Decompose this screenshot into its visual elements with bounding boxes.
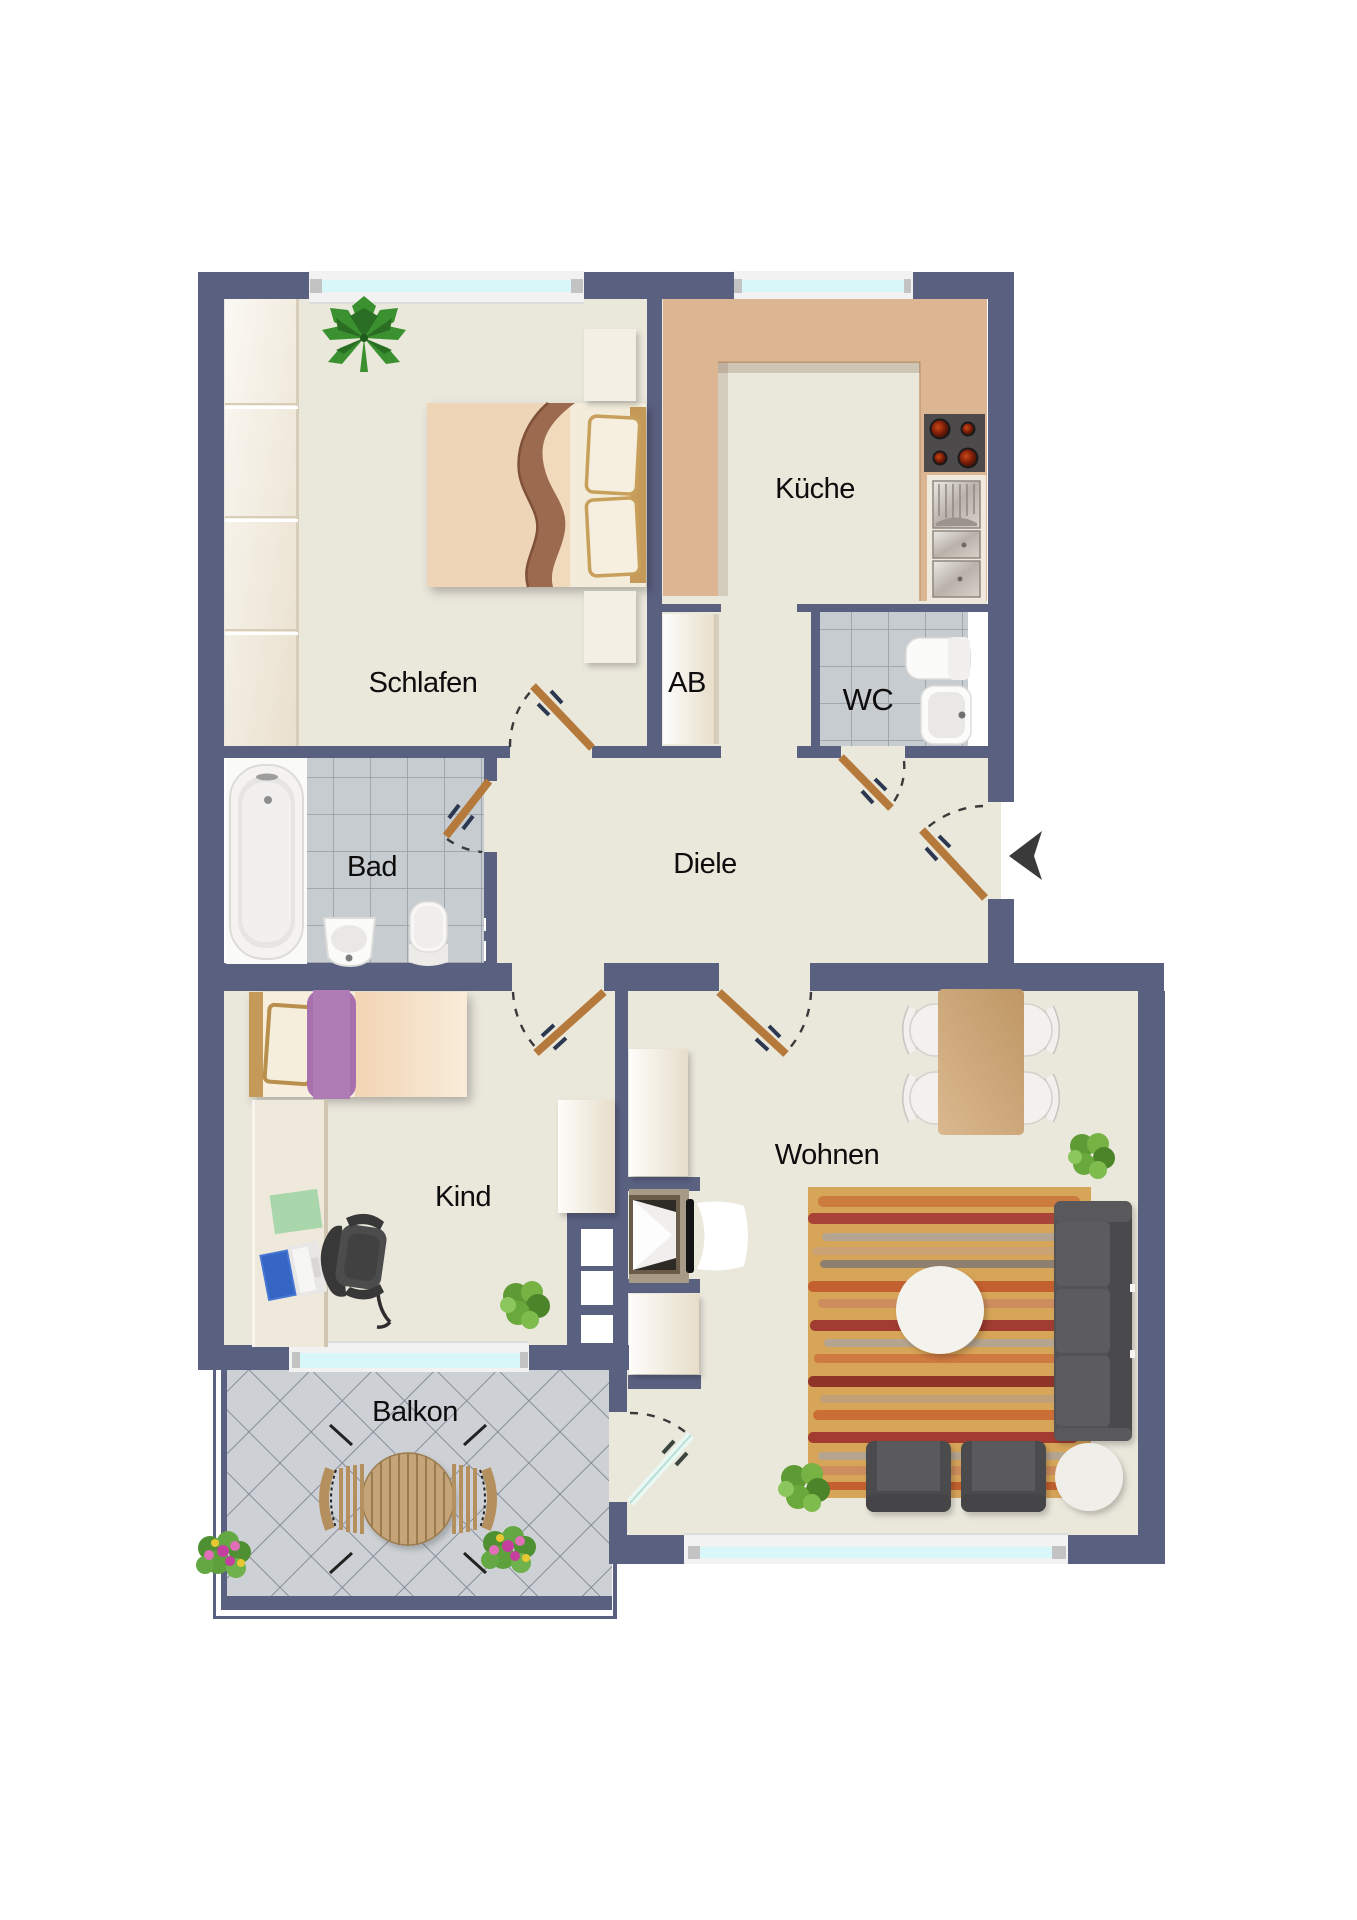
svg-text:Bad: Bad [347,851,397,883]
svg-text:Diele: Diele [673,848,737,880]
svg-text:Balkon: Balkon [372,1396,458,1428]
svg-text:Kind: Kind [435,1181,491,1213]
svg-text:Schlafen: Schlafen [369,667,478,699]
svg-text:AB: AB [668,667,706,699]
svg-text:Küche: Küche [775,473,855,505]
svg-text:Wohnen: Wohnen [775,1139,880,1171]
svg-text:WC: WC [843,682,894,717]
